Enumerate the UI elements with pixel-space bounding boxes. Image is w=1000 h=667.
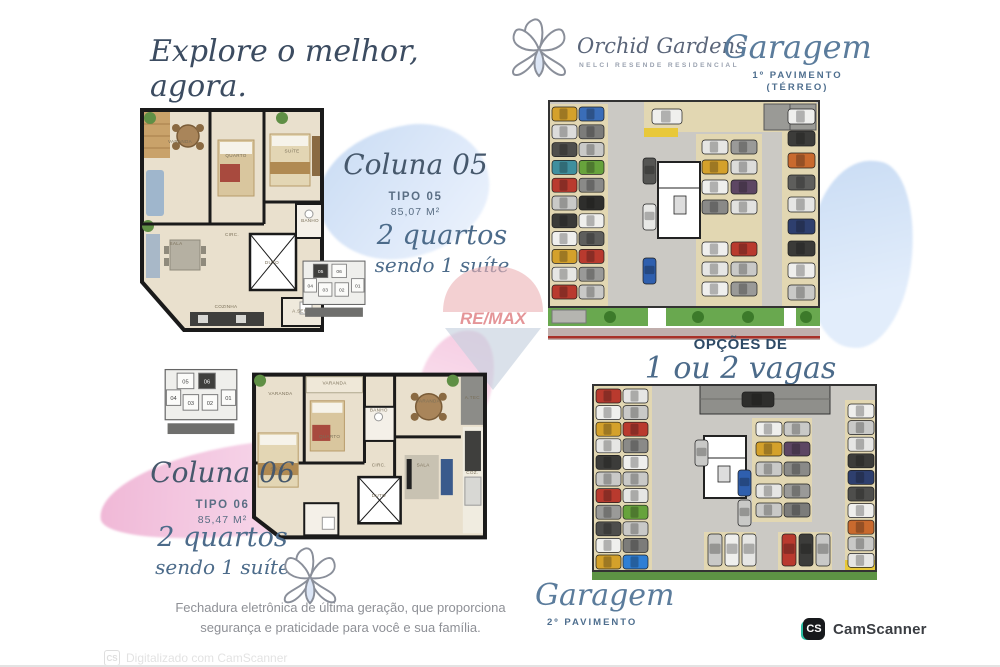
svg-text:05: 05: [182, 379, 188, 385]
room-label: COZ.: [466, 470, 478, 475]
car-icon: [579, 285, 604, 299]
car-icon: [623, 422, 648, 436]
car-icon: [788, 241, 815, 256]
coluna06-tipo: TIPO 06: [120, 499, 325, 511]
coluna06-title: Coluna 06: [120, 456, 325, 489]
car-icon: [816, 534, 830, 566]
room-label: SALA: [417, 463, 431, 468]
car-icon: [731, 140, 757, 154]
car-icon: [552, 285, 577, 299]
car-icon: [708, 534, 722, 566]
car-icon: [623, 472, 648, 486]
car-icon: [596, 389, 621, 403]
car-icon: [596, 439, 621, 453]
car-icon: [579, 267, 604, 281]
car-icon: [552, 267, 577, 281]
car-icon: [552, 143, 577, 157]
car-icon: [643, 204, 656, 230]
car-icon: [731, 242, 757, 256]
car-icon: [579, 178, 604, 192]
tagline: Explore o melhor, agora.: [150, 34, 480, 104]
car-icon: [623, 489, 648, 503]
car-icon: [788, 219, 815, 234]
car-icon: [596, 538, 621, 552]
car-icon: [579, 107, 604, 121]
room-label: DUTO: [372, 493, 386, 498]
coluna05-area: 85,07 M²: [333, 206, 498, 218]
car-icon: [623, 389, 648, 403]
feature-note-line1: Fechadura eletrônica de última geração, …: [128, 598, 553, 618]
car-icon: [623, 439, 648, 453]
car-icon: [702, 180, 728, 194]
garage-1-heading: Garagem 1º PAVIMENTO (TÉRREO): [700, 28, 895, 93]
room-label: VARANDA: [416, 398, 441, 403]
car-icon: [848, 537, 874, 551]
car-icon: [596, 422, 621, 436]
room-label: A.TEC: [465, 395, 480, 400]
car-icon: [731, 180, 757, 194]
feature-note: Fechadura eletrônica de última geração, …: [128, 598, 553, 637]
room-label: SALA: [170, 241, 184, 246]
car-icon: [623, 505, 648, 519]
car-icon: [552, 214, 577, 228]
car-icon: [848, 504, 874, 518]
car-icon: [702, 160, 728, 174]
car-icon: [782, 534, 796, 566]
garage-2-title: Garagem: [535, 578, 715, 613]
room-label: VARANDA: [323, 381, 348, 386]
svg-text:03: 03: [188, 401, 194, 407]
car-icon: [695, 440, 708, 466]
car-icon: [742, 392, 774, 407]
car-icon: [579, 232, 604, 246]
svg-text:01: 01: [225, 396, 231, 402]
car-icon: [552, 160, 577, 174]
car-icon: [784, 503, 810, 517]
garage-1-floor: 1º PAVIMENTO: [700, 70, 895, 81]
svg-text:03: 03: [322, 288, 328, 294]
garage-plan-2: [592, 384, 877, 582]
car-icon: [784, 442, 810, 456]
car-icon: [596, 406, 621, 420]
car-icon: [848, 421, 874, 435]
svg-text:06: 06: [336, 269, 342, 275]
car-icon: [623, 455, 648, 469]
car-icon: [788, 131, 815, 146]
svg-text:06: 06: [204, 379, 210, 385]
garage-2-floor: 2º PAVIMENTO: [535, 617, 715, 628]
garage-1-level: (TÉRREO): [700, 82, 895, 93]
garage-2-heading: Garagem 2º PAVIMENTO: [535, 578, 715, 628]
car-icon: [848, 553, 874, 567]
car-icon: [756, 484, 782, 498]
car-icon: [579, 143, 604, 157]
car-icon: [848, 437, 874, 451]
car-icon: [738, 470, 751, 496]
car-icon: [731, 160, 757, 174]
car-icon: [552, 107, 577, 121]
car-icon: [596, 555, 621, 569]
car-icon: [738, 500, 751, 526]
car-icon: [848, 454, 874, 468]
orchid-gardens-logo: Orchid Gardens NELCI RESENDE RESIDENCIAL: [503, 12, 713, 92]
brochure-page: Explore o melhor, agora. Orchid Gardens …: [0, 0, 1000, 667]
car-icon: [579, 125, 604, 139]
svg-text:02: 02: [339, 288, 345, 294]
svg-text:01: 01: [355, 283, 361, 289]
parking-options-heading: OPÇÕES DE 1 ou 2 vagas: [598, 336, 883, 386]
feature-note-line2: segurança e praticidade para você e sua …: [128, 618, 553, 638]
car-icon: [596, 489, 621, 503]
room-label: QUARTO: [319, 434, 340, 439]
car-icon: [799, 534, 813, 566]
room-label: CIRC.: [372, 463, 386, 468]
car-icon: [702, 140, 728, 154]
car-icon: [742, 534, 756, 566]
car-icon: [788, 175, 815, 190]
car-icon: [623, 406, 648, 420]
car-icon: [756, 442, 782, 456]
car-icon: [725, 534, 739, 566]
car-icon: [788, 153, 815, 168]
car-icon: [848, 487, 874, 501]
car-icon: [848, 520, 874, 534]
car-icon: [596, 522, 621, 536]
car-icon: [784, 422, 810, 436]
car-icon: [623, 555, 648, 569]
remax-brand-text: RE/MAX: [460, 309, 528, 328]
coluna05-block: Coluna 05 TIPO 05 85,07 M²: [333, 148, 498, 218]
car-icon: [756, 422, 782, 436]
car-icon: [848, 404, 874, 418]
room-label: VARANDA: [268, 391, 293, 396]
coluna05-feature1: 2 quartos: [352, 220, 532, 251]
svg-text:04: 04: [308, 283, 314, 289]
room-label: QUARTO: [225, 153, 246, 158]
scan-watermark: CS Digitalizado com CamScanner: [104, 650, 287, 666]
car-icon: [552, 178, 577, 192]
room-label: VARANDA: [168, 139, 193, 144]
svg-text:04: 04: [170, 396, 177, 402]
coluna05-tipo: TIPO 05: [333, 191, 498, 203]
room-label: CIRC.: [225, 232, 239, 237]
coluna06-block: Coluna 06 TIPO 06 85,47 M²: [120, 456, 325, 526]
car-icon: [702, 262, 728, 276]
coluna05-title: Coluna 05: [333, 148, 498, 181]
car-icon: [623, 522, 648, 536]
svg-text:02: 02: [207, 401, 213, 407]
camscanner-badge-icon: CS: [803, 618, 825, 640]
car-icon: [731, 200, 757, 214]
orchid-flower-icon: [503, 14, 575, 88]
camscanner-label: CamScanner: [833, 621, 927, 638]
car-icon: [643, 258, 656, 284]
car-icon: [756, 503, 782, 517]
car-icon: [596, 455, 621, 469]
room-label: BANHO: [301, 218, 319, 223]
car-icon: [596, 472, 621, 486]
car-icon: [579, 214, 604, 228]
car-icon: [784, 484, 810, 498]
keyplan-coluna-06: 050604010302: [156, 366, 246, 440]
car-icon: [788, 285, 815, 300]
car-icon: [579, 196, 604, 210]
car-icon: [579, 249, 604, 263]
car-icon: [702, 282, 728, 296]
options-big-text: 1 ou 2 vagas: [598, 351, 883, 386]
car-icon: [784, 462, 810, 476]
room-label: COZINHA: [215, 304, 238, 309]
car-icon: [623, 538, 648, 552]
car-icon: [643, 158, 656, 184]
garage-1-title: Garagem: [700, 28, 895, 66]
car-icon: [702, 200, 728, 214]
camscanner-logo: CS CamScanner: [803, 618, 927, 640]
car-icon: [788, 197, 815, 212]
room-label: BANHO: [370, 407, 388, 412]
car-icon: [848, 470, 874, 484]
garage-plan-1: [548, 100, 820, 340]
car-icon: [596, 505, 621, 519]
cs-mini-badge-icon: CS: [104, 650, 120, 666]
car-icon: [552, 196, 577, 210]
scan-watermark-text: Digitalizado com CamScanner: [126, 651, 287, 665]
room-label: SUÍTE: [284, 147, 299, 153]
room-label: DUTO: [265, 260, 279, 265]
car-icon: [652, 109, 682, 124]
car-icon: [788, 263, 815, 278]
keyplan-street-bar: [168, 423, 235, 434]
cs-badge-text: CS: [803, 618, 825, 640]
car-icon: [552, 232, 577, 246]
car-icon: [552, 249, 577, 263]
car-icon: [731, 282, 757, 296]
keyplan-street-bar: [305, 308, 363, 317]
car-icon: [552, 125, 577, 139]
svg-text:05: 05: [318, 269, 324, 275]
car-icon: [731, 262, 757, 276]
car-icon: [756, 462, 782, 476]
keyplan-coluna-05: 050604010302: [295, 258, 373, 322]
car-icon: [579, 160, 604, 174]
car-icon: [702, 242, 728, 256]
car-icon: [788, 109, 815, 124]
